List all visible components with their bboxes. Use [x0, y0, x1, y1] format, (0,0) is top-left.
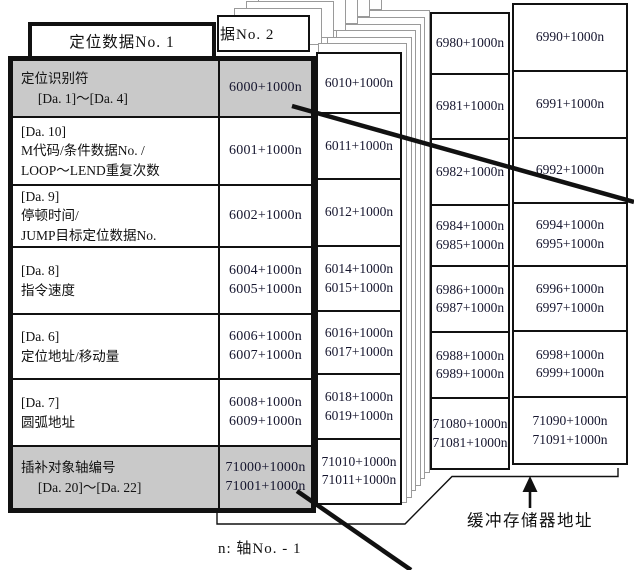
address-cell: 6991+1000n — [514, 72, 626, 139]
address-cell: 6001+1000n — [218, 118, 311, 184]
address-value: 6992+1000n — [536, 161, 604, 179]
table-row: [Da. 6] 定位地址/移动量 6006+1000n 6007+1000n — [13, 315, 311, 380]
address-cell: 6980+1000n — [432, 14, 508, 75]
address-value: 6001+1000n — [229, 142, 302, 161]
address-value: 6982+1000n — [436, 163, 504, 181]
address-value: 6018+1000n — [325, 388, 393, 406]
address-value: 6000+1000n — [229, 79, 302, 98]
address-value: 6016+1000n — [325, 324, 393, 342]
address-cell: 71090+1000n 71091+1000n — [514, 398, 626, 463]
address-value: 6007+1000n — [229, 347, 302, 366]
buffer-memory-diagram: 6990+1000n 6991+1000n 6992+1000n 6994+10… — [0, 0, 634, 570]
address-value: 6002+1000n — [229, 207, 302, 226]
address-value: 6999+1000n — [536, 364, 604, 382]
address-value: 71080+1000n — [432, 415, 507, 433]
address-value: 6997+1000n — [536, 299, 604, 317]
buffer-memory-address-label: 缓冲存储器地址 — [467, 507, 593, 531]
address-value: 6019+1000n — [325, 407, 393, 425]
card-2-title-box: 据No. 2 — [217, 15, 310, 52]
address-cell: 6011+1000n — [318, 114, 400, 180]
table-row: [Da. 9] 停顿时间/ JUMP目标定位数据No. 6002+1000n — [13, 186, 311, 248]
table-row: 定位识别符 [Da. 1]～[Da. 4] 6000+1000n — [13, 61, 311, 118]
table-row: [Da. 7] 圆弧地址 6008+1000n 6009+1000n — [13, 380, 311, 447]
card-title: 定位数据No. 1 — [69, 30, 174, 52]
address-value: 6014+1000n — [325, 260, 393, 278]
address-value: 6011+1000n — [325, 137, 393, 155]
address-value: 6989+1000n — [436, 365, 504, 383]
address-cell: 71010+1000n 71011+1000n — [318, 440, 400, 502]
address-value: 6991+1000n — [536, 95, 604, 113]
address-value: 6005+1000n — [229, 281, 302, 300]
row-label: [Da. 8] 指令速度 — [13, 248, 218, 313]
address-value: 6010+1000n — [325, 74, 393, 92]
row-label: 定位识别符 [Da. 1]～[Da. 4] — [13, 61, 218, 116]
row-label: [Da. 9] 停顿时间/ JUMP目标定位数据No. — [13, 186, 218, 246]
address-value: 71010+1000n — [321, 453, 396, 471]
address-value: 6996+1000n — [536, 280, 604, 298]
positioning-data-card-100: 6990+1000n 6991+1000n 6992+1000n 6994+10… — [512, 3, 628, 465]
table-row: [Da. 10] M代码/条件数据No. / LOOP～LEND重复次数 600… — [13, 118, 311, 186]
address-value: 6986+1000n — [436, 281, 504, 299]
address-value: 6990+1000n — [536, 28, 604, 46]
address-cell: 6986+1000n 6987+1000n — [432, 267, 508, 333]
address-value: 6995+1000n — [536, 235, 604, 253]
address-value: 6008+1000n — [229, 394, 302, 413]
address-value: 71081+1000n — [432, 434, 507, 452]
address-value: 71011+1000n — [322, 471, 397, 489]
address-cell: 6992+1000n — [514, 139, 626, 204]
address-value: 6998+1000n — [536, 346, 604, 364]
address-value: 71091+1000n — [532, 431, 607, 449]
address-value: 6006+1000n — [229, 328, 302, 347]
axis-note: n: 轴No. - 1 — [218, 537, 302, 558]
address-value: 6985+1000n — [436, 236, 504, 254]
row-label: [Da. 7] 圆弧地址 — [13, 380, 218, 445]
address-cell: 6990+1000n — [514, 5, 626, 72]
positioning-data-card-1: 定位识别符 [Da. 1]～[Da. 4] 6000+1000n [Da. 10… — [8, 56, 316, 513]
address-cell: 6994+1000n 6995+1000n — [514, 204, 626, 267]
address-cell: 71000+1000n 71001+1000n — [218, 447, 311, 508]
address-value: 71001+1000n — [225, 478, 305, 497]
address-cell: 71080+1000n 71081+1000n — [432, 399, 508, 468]
address-value: 71000+1000n — [225, 459, 305, 478]
address-cell: 6012+1000n — [318, 180, 400, 247]
address-value: 6004+1000n — [229, 262, 302, 281]
address-cell: 6981+1000n — [432, 75, 508, 140]
address-cell: 6010+1000n — [318, 54, 400, 114]
address-value: 71090+1000n — [532, 412, 607, 430]
address-value: 6984+1000n — [436, 217, 504, 235]
address-cell: 6988+1000n 6989+1000n — [432, 333, 508, 399]
row-label: 插补对象轴编号 [Da. 20]～[Da. 22] — [13, 447, 218, 508]
address-cell: 6998+1000n 6999+1000n — [514, 332, 626, 398]
table-row: [Da. 8] 指令速度 6004+1000n 6005+1000n — [13, 248, 311, 315]
address-cell: 6018+1000n 6019+1000n — [318, 375, 400, 440]
address-value: 6981+1000n — [436, 97, 504, 115]
up-arrow-icon — [523, 476, 538, 492]
address-value: 6012+1000n — [325, 203, 393, 221]
row-label: [Da. 10] M代码/条件数据No. / LOOP～LEND重复次数 — [13, 118, 218, 184]
address-cell: 6016+1000n 6017+1000n — [318, 312, 400, 375]
address-cell: 6008+1000n 6009+1000n — [218, 380, 311, 445]
card-title: 据No. 2 — [220, 23, 274, 44]
row-label: [Da. 6] 定位地址/移动量 — [13, 315, 218, 378]
address-value: 6980+1000n — [436, 34, 504, 52]
address-value: 6009+1000n — [229, 413, 302, 432]
address-cell: 6996+1000n 6997+1000n — [514, 267, 626, 332]
table-row: 插补对象轴编号 [Da. 20]～[Da. 22] 71000+1000n 71… — [13, 447, 311, 508]
address-value: 6017+1000n — [325, 343, 393, 361]
address-cell: 6982+1000n — [432, 140, 508, 206]
positioning-data-card-99: 6980+1000n 6981+1000n 6982+1000n 6984+10… — [430, 12, 510, 470]
address-cell: 6002+1000n — [218, 186, 311, 246]
address-cell: 6006+1000n 6007+1000n — [218, 315, 311, 378]
address-value: 6015+1000n — [325, 279, 393, 297]
card-1-title-box: 定位数据No. 1 — [28, 22, 216, 60]
address-cell: 6014+1000n 6015+1000n — [318, 247, 400, 312]
positioning-data-card-2: 6010+1000n 6011+1000n 6012+1000n 6014+10… — [316, 52, 402, 505]
address-value: 6988+1000n — [436, 347, 504, 365]
address-cell: 6984+1000n 6985+1000n — [432, 206, 508, 267]
address-cell: 6004+1000n 6005+1000n — [218, 248, 311, 313]
address-value: 6987+1000n — [436, 299, 504, 317]
address-value: 6994+1000n — [536, 216, 604, 234]
address-cell: 6000+1000n — [218, 61, 311, 116]
